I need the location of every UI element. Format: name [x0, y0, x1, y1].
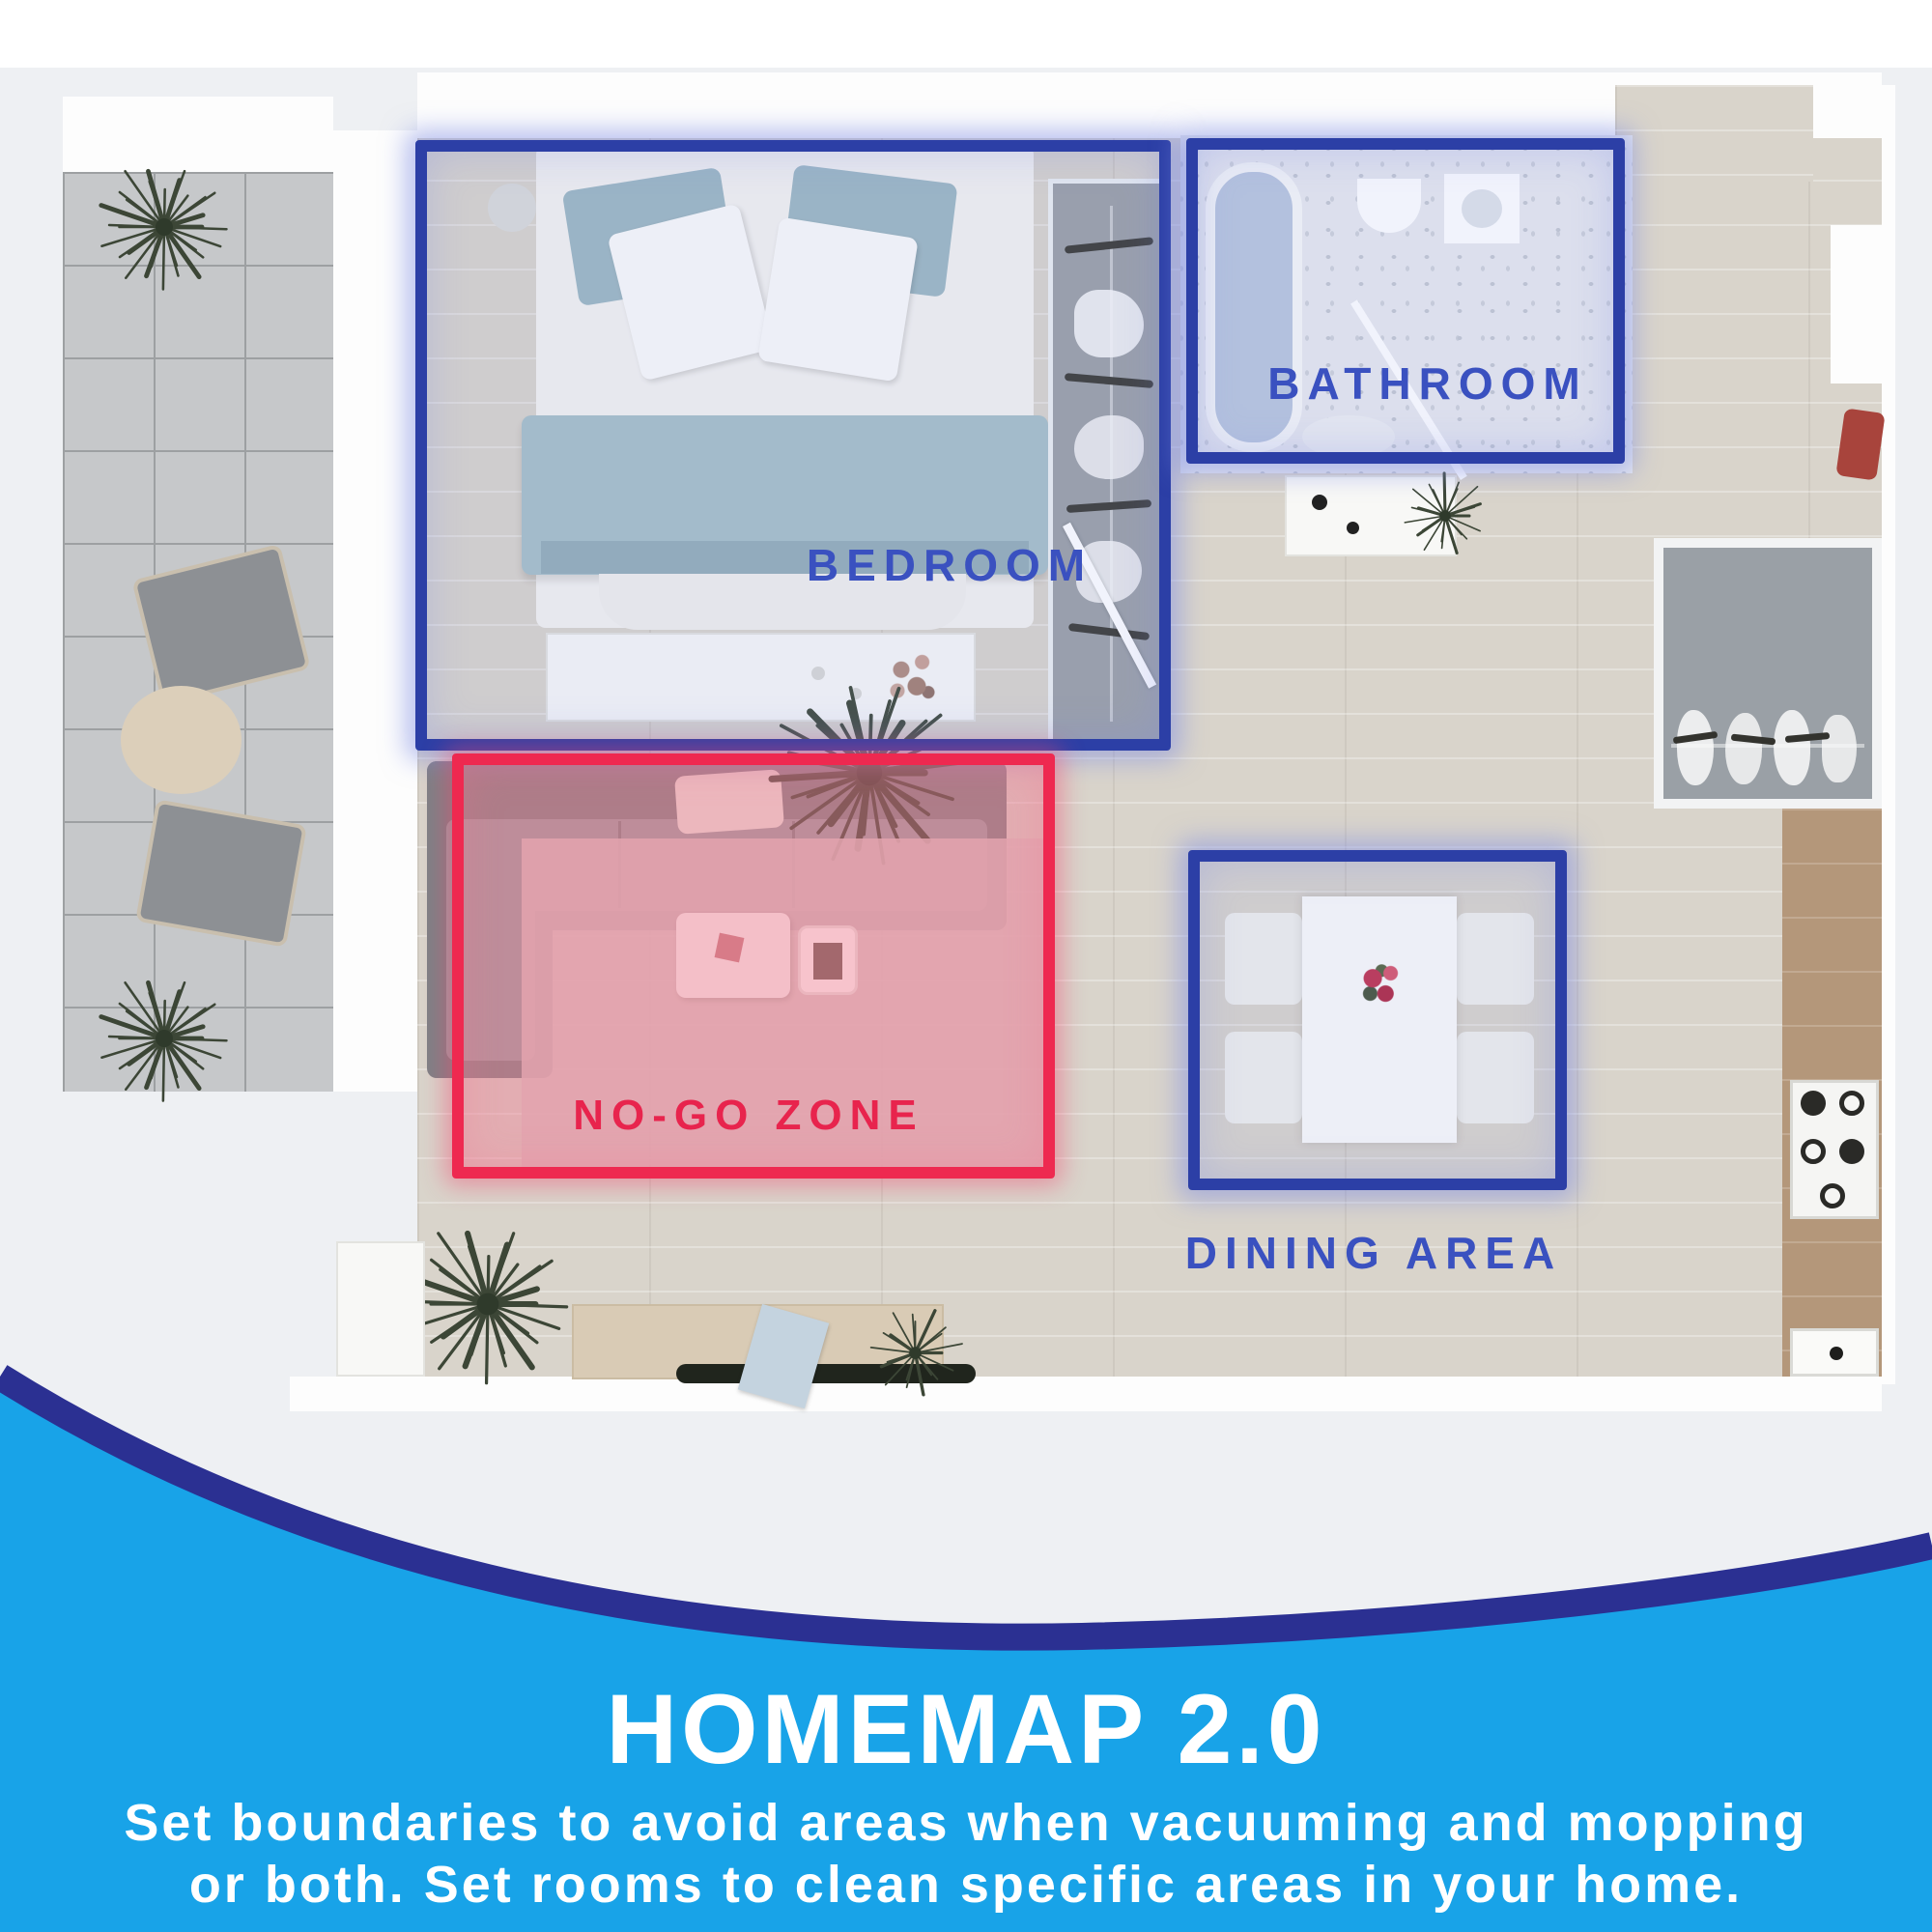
terrace-chair-bottom: [135, 799, 307, 947]
terrace-table: [121, 686, 241, 794]
stove-burner-1: [1801, 1091, 1826, 1116]
kitchen-faucet-dot-2: [1347, 522, 1359, 534]
stove-burner-3: [1801, 1139, 1826, 1164]
right-wall: [1882, 85, 1895, 1384]
bedroom-zone-box: [415, 140, 1171, 751]
stove-burner-2: [1839, 1091, 1864, 1116]
closet-clothes-4: [1822, 715, 1857, 782]
stove-burner-5: [1820, 1183, 1845, 1208]
footer-title: HOMEMAP 2.0: [0, 1673, 1932, 1786]
entry-nook-floor: [1615, 85, 1813, 182]
bathroom-zone-label: BATHROOM: [1267, 357, 1587, 410]
closet-clothes-1: [1677, 710, 1714, 785]
footer-description-line-1: Set boundaries to avoid areas when vacuu…: [0, 1793, 1932, 1853]
footer-description-line-2: or both. Set rooms to clean specific are…: [0, 1855, 1932, 1915]
dining-zone-box: [1188, 850, 1567, 1190]
stove-burner-4: [1839, 1139, 1864, 1164]
kitchen-counter-plant-icon: [1399, 469, 1492, 562]
terrace-plant-top-icon: [92, 155, 237, 299]
terrace-plant-bottom-icon: [92, 966, 237, 1111]
homemap-marketing-image: BEDROOM BATHROOM DINING AREA NO-GO ZONE …: [0, 0, 1932, 1932]
bedroom-zone-label: BEDROOM: [807, 539, 1093, 591]
closet-clothes-3: [1774, 710, 1810, 785]
closet-clothes-2: [1725, 713, 1762, 784]
bathroom-zone-box: [1186, 138, 1625, 464]
kitchen-faucet-dot-1: [1312, 495, 1327, 510]
no-go-zone-label: NO-GO ZONE: [573, 1092, 924, 1140]
terrace-wall: [333, 130, 417, 1092]
fridge-column: [1831, 225, 1882, 384]
dining-zone-label: DINING AREA: [1185, 1227, 1562, 1279]
stove: [1790, 1080, 1879, 1219]
